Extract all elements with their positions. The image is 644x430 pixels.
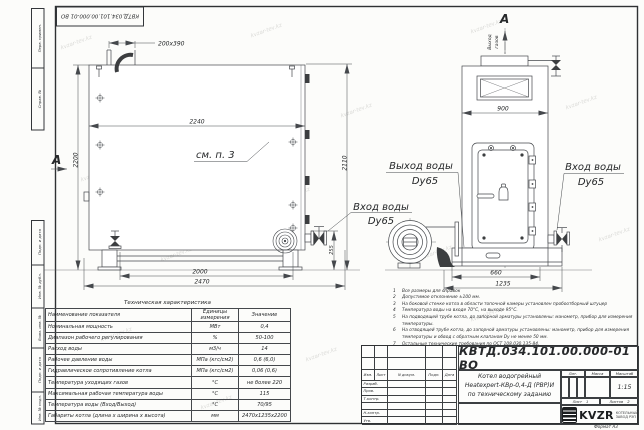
table-cell: МПа (кгс/см2) (192, 355, 239, 366)
frame-label-podp-data-1: Подп. и дата (37, 228, 42, 255)
frame-label-perv-primen: Перв. примен. (37, 24, 42, 53)
sheet-label: Лист (573, 400, 582, 404)
table-cell: 14 (239, 344, 291, 355)
col-header-units: Единицы измерения (192, 309, 239, 322)
side-inlet-valve (305, 227, 327, 246)
document-designation: КВТД.034.101.00.000-01 ВО (458, 346, 639, 370)
mass-label: Масса (585, 370, 610, 377)
table-row: Рабочее давление водыМПа (кгс/см2)0,6 (6… (46, 355, 291, 366)
sheets-value: 2 (627, 400, 629, 404)
col-dokum: N докум. (388, 370, 426, 381)
frame-label-podp-data-2: Подп. и дата (37, 356, 42, 383)
boiler-side-view: 200x390 2240 2200 2110 255 2000 (44, 41, 412, 291)
dim-255: 255 (329, 245, 335, 255)
tech-characteristics-table: Техническая характеристика Наименование … (45, 300, 290, 422)
frame-label-inv-dubl: Инв. № дубл. (37, 273, 42, 299)
rotated-designation-stamp: КВТД.034.101.00.000-01 ВО (60, 13, 139, 19)
note-number: 5 (393, 315, 402, 328)
doc-name-line1: Котел водогрейный (478, 373, 541, 382)
table-cell: Габариты котла (длина х ширина х высота) (46, 410, 192, 421)
row-utv: Утв. (362, 417, 388, 424)
sheets-label: Листов (609, 400, 623, 404)
row-tkontr: Т.контр. (362, 396, 388, 403)
table-cell: МПа (кгс/см2) (192, 366, 239, 377)
col-header-value: Значение (239, 309, 291, 322)
dim-900: 900 (497, 106, 509, 113)
table-cell: 2470х1235х2200 (239, 410, 291, 421)
dim-2000: 2000 (192, 269, 207, 276)
dim-1235: 1235 (495, 281, 510, 288)
see-note-callout: см. п. 3 (196, 150, 235, 161)
row-prov: Пров. (362, 388, 388, 395)
table-cell: 70/95 (239, 399, 291, 410)
title-block-revision-grid: Изм. Лист N докум. Подп. Дата Разраб. Пр… (362, 346, 458, 425)
col-header-name: Наименование показателя (46, 309, 192, 322)
front-base (452, 248, 562, 266)
table-row: Расход водым3/ч14 (46, 344, 291, 355)
table-cell: м3/ч (192, 344, 239, 355)
kvzr-logo-icon (562, 407, 577, 423)
format-note: Формат А3 (575, 424, 637, 429)
table-cell: мм (192, 410, 239, 421)
sheet-value: 1 (586, 400, 588, 404)
note-item: 5На подводящей трубе котла, до запорной … (393, 315, 641, 328)
dim-2110: 2110 (342, 155, 349, 170)
table-cell: 50-100 (239, 333, 291, 344)
table-cell: Максимальная рабочая температура воды (46, 388, 192, 399)
gas-outlet-label-line2: газов (495, 35, 500, 48)
table-row: Температура уходящих газов°Сне более 220 (46, 377, 291, 388)
dim-2240: 2240 (189, 119, 204, 126)
table-cell: Расход воды (46, 344, 192, 355)
section-letter-left: А (51, 153, 61, 167)
table-row: Габариты котла (длина х ширина х высота)… (46, 410, 291, 421)
lit-label: Лит. (561, 370, 585, 377)
side-inlet-line2: Dy65 (368, 216, 394, 227)
drawing-sheet: kvzar-tev.kz kvzar-tev.kz kvzar-tev.kz k… (0, 0, 644, 430)
table-cell: 0,06 (0,6) (239, 366, 291, 377)
table-cell: Номинальная мощность (46, 322, 192, 333)
section-letter-top: А (499, 12, 509, 26)
door-handle (477, 194, 494, 198)
frame-label-inv-podl: Инв. № подл. (37, 395, 42, 421)
scale-label: Масштаб (610, 370, 639, 377)
gas-outlet-label-line1: Выход (487, 34, 493, 49)
dim-660: 660 (490, 270, 502, 277)
table-cell: °С (192, 377, 239, 388)
table-cell: Диапазон рабочего регулирования (46, 333, 192, 344)
mass-value (585, 377, 610, 398)
title-block: Изм. Лист N докум. Подп. Дата Разраб. Пр… (361, 345, 638, 424)
table-row: Максимальная рабочая температура воды°С1… (46, 388, 291, 399)
table-row: Гидравлическое сопротивление котлаМПа (к… (46, 366, 291, 377)
sheet-number: Лист 1 (561, 398, 600, 405)
company-logo: KVZR КОТЕЛЬНЫЙ ЗАВОД РЭП (561, 405, 639, 425)
front-inlet-line2: Dy65 (578, 177, 604, 188)
boiler-front-view: А Выход газов (385, 12, 624, 292)
frame-label-sprav-no: Справ. № (37, 90, 42, 109)
document-name: Котел водогрейный Heatexpert-КВр-0,4-Д (… (458, 370, 561, 403)
row-razrab: Разраб. (362, 381, 388, 388)
table-cell: 115 (239, 388, 291, 399)
frame-label-vzam-inv: Взам. инв. № (37, 315, 42, 341)
table-cell: °С (192, 399, 239, 410)
table-cell: не более 220 (239, 377, 291, 388)
logo-name: KVZR (579, 409, 614, 422)
side-inlet-line1: Вход воды (353, 202, 409, 213)
sheets-total: Листов 2 (600, 398, 639, 405)
table-cell: % (192, 333, 239, 344)
front-inlet-label: Вход воды Dy65 (557, 162, 624, 230)
note-item: 6На отводящей трубе котла, до запорной а… (393, 328, 641, 341)
table-row: Номинальная мощностьМВт0,4 (46, 322, 291, 333)
table-cell: Рабочее давление воды (46, 355, 192, 366)
table-cell: Гидравлическое сопротивление котла (46, 366, 192, 377)
blower-fan (386, 218, 459, 268)
front-outlet-line1: Выход воды (389, 161, 453, 172)
table-cell: Температура воды (Вход/Выход) (46, 399, 192, 410)
table-cell: Температура уходящих газов (46, 377, 192, 388)
note-text: Допустимое отклонение ±100 мм. (402, 295, 641, 302)
note-text: На отводящей трубе котла, до запорной ар… (402, 328, 641, 341)
note-item: 2Допустимое отклонение ±100 мм. (393, 295, 641, 302)
note-text: На подводящей трубе котла, до запорной а… (402, 315, 641, 328)
dim-2470: 2470 (194, 279, 209, 286)
doc-name-line3: по техническому заданию (468, 391, 551, 400)
top-safety-valve (551, 56, 561, 76)
front-outlet-line2: Dy65 (412, 176, 438, 187)
col-list: Лист (375, 370, 388, 381)
table-row: Температура воды (Вход/Выход)°С70/95 (46, 399, 291, 410)
dim-hatch: 200x390 (158, 41, 185, 48)
peephole (499, 187, 508, 201)
table-row: Диапазон рабочего регулирования%50-100 (46, 333, 291, 344)
table-cell: 0,4 (239, 322, 291, 333)
front-inlet-line1: Вход воды (565, 162, 621, 173)
table-header-row: Наименование показателя Единицы измерени… (46, 309, 291, 322)
table-cell: МВт (192, 322, 239, 333)
row-nkontr: Н.контр. (362, 410, 388, 417)
col-podp: Подп. (426, 370, 443, 381)
table-cell: °С (192, 388, 239, 399)
scale-value: 1:15 (610, 377, 639, 398)
note-number: 6 (393, 328, 402, 341)
logo-sub2: ЗАВОД РЭП (616, 415, 638, 419)
doc-name-line2: Heatexpert-КВр-0,4-Д (РВР)И (465, 382, 554, 391)
table-cell: 0,6 (6,0) (239, 355, 291, 366)
col-izm: Изм. (362, 370, 375, 381)
furnace-door (472, 143, 536, 250)
table-title: Техническая характеристика (45, 300, 290, 306)
dim-2200: 2200 (73, 152, 80, 167)
col-data: Дата (443, 370, 457, 381)
note-number: 2 (393, 295, 402, 302)
notes-list: 1Все размеры для справок 2Допустимое отк… (393, 289, 641, 349)
